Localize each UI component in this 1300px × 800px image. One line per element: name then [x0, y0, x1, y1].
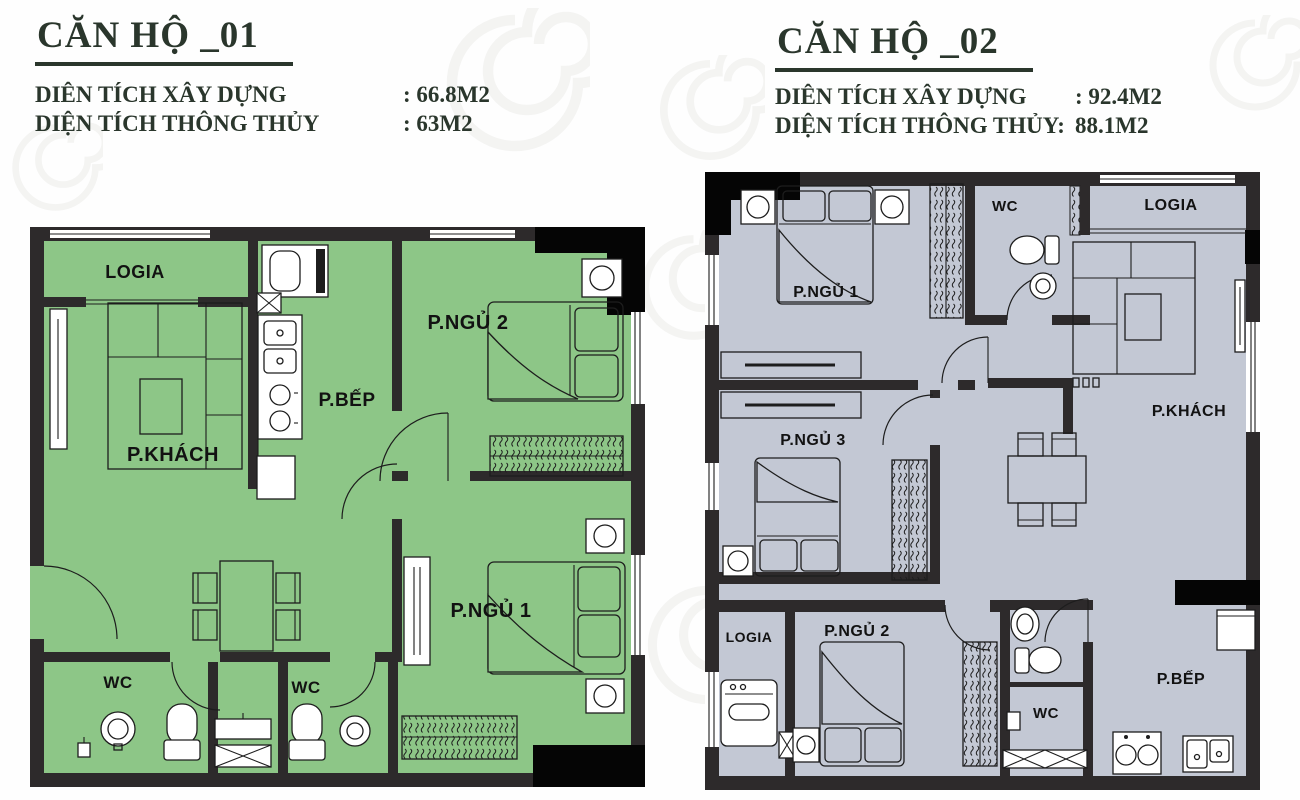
sink-icon — [340, 716, 370, 746]
sink-icon — [1011, 607, 1039, 641]
room-label-bep: P.BẾP — [318, 389, 375, 411]
nightstand-icon — [586, 679, 624, 713]
faucet-icon — [1007, 712, 1020, 730]
wardrobe-icon — [402, 716, 517, 759]
toilet-icon — [1015, 647, 1061, 673]
floorplan-brochure: { "colors": { "wall": "#2d2a2b", "black_… — [0, 0, 1300, 800]
apartment-01-built-area: DIÊN TÍCH XÂY DỰNG : 66.8M2 — [35, 80, 490, 109]
toilet-icon — [289, 704, 325, 760]
apartment-01-header: CĂN HỘ _01 DIÊN TÍCH XÂY DỰNG : 66.8M2 D… — [35, 14, 490, 138]
background-ornament — [655, 55, 765, 165]
nightstand-icon — [586, 519, 624, 553]
washing-machine-icon — [721, 680, 777, 746]
wardrobe-icon — [963, 642, 997, 766]
kitchen-cabinet-icon — [257, 456, 295, 499]
cabinet-icon — [404, 557, 430, 665]
room-label-logia: LOGIA — [105, 262, 165, 282]
fridge-icon — [262, 245, 328, 297]
room-label-ngu3: P.NGỦ 3 — [780, 430, 845, 449]
wardrobe-icon — [930, 184, 963, 318]
apartment-01-title: CĂN HỘ _01 — [35, 14, 293, 66]
clear-area-label: DIỆN TÍCH THÔNG THỦY — [35, 109, 403, 138]
tv-cabinet-icon — [50, 309, 67, 449]
shaft-icon — [215, 745, 271, 767]
apartment-01-clear-area: DIỆN TÍCH THÔNG THỦY : 63M2 — [35, 109, 490, 138]
room-label-wc-bottom: WC — [1033, 705, 1059, 722]
nightstand-icon — [582, 259, 622, 297]
room-label-wc1: WC — [103, 673, 132, 692]
room-label-ngu2: P.NGỦ 2 — [428, 310, 509, 334]
clear-area-value: 88.1M2 — [1075, 111, 1148, 140]
toilet-icon — [164, 704, 200, 760]
built-area-value: : 92.4M2 — [1075, 82, 1162, 111]
nightstand-icon — [741, 190, 775, 224]
plan1-floor — [30, 227, 643, 787]
clear-area-label: DIỆN TÍCH THÔNG THỦY: — [775, 111, 1075, 140]
room-label-ngu1: P.NGỦ 1 — [793, 282, 858, 301]
apartment-02-header: CĂN HỘ _02 DIÊN TÍCH XÂY DỰNG : 92.4M2 D… — [775, 20, 1162, 140]
room-label-logia-bottom: LOGIA — [726, 629, 773, 645]
wardrobe-icon — [892, 460, 927, 580]
nightstand-icon — [793, 728, 819, 762]
built-area-label: DIÊN TÍCH XÂY DỰNG — [35, 80, 403, 109]
apartment-02-floorplan: P.NGỦ 1 WC LOGIA P.KHÁCH P.NGỦ 3 P.NGỦ 2… — [705, 172, 1260, 797]
room-label-khach: P.KHÁCH — [1152, 401, 1226, 420]
stove-icon — [1113, 732, 1161, 774]
shaft-icon — [257, 293, 281, 313]
room-label-khach: P.KHÁCH — [127, 443, 219, 466]
apartment-02-built-area: DIÊN TÍCH XÂY DỰNG : 92.4M2 — [775, 82, 1162, 111]
apartment-01-floorplan: LOGIA P.KHÁCH P.BẾP P.NGỦ 2 P.NGỦ 1 WC W… — [30, 227, 645, 794]
room-label-ngu2: P.NGỦ 2 — [824, 621, 889, 640]
toilet-icon — [1010, 236, 1059, 264]
room-label-wc2: WC — [291, 678, 320, 697]
apartment-02-title: CĂN HỘ _02 — [775, 20, 1033, 72]
built-area-label: DIÊN TÍCH XÂY DỰNG — [775, 82, 1075, 111]
room-label-ngu1: P.NGỦ 1 — [451, 598, 532, 622]
kitchen-sink-icon — [1183, 736, 1233, 772]
clear-area-value: : 63M2 — [403, 109, 473, 138]
room-label-logia-top: LOGIA — [1144, 197, 1197, 214]
built-area-value: : 66.8M2 — [403, 80, 490, 109]
background-ornament — [1205, 15, 1300, 115]
room-label-wc-top: WC — [992, 198, 1018, 215]
kitchen-sink-icon — [258, 315, 302, 439]
wardrobe-icon — [490, 436, 623, 476]
shaft-icon — [1003, 750, 1087, 768]
nightstand-icon — [875, 190, 909, 224]
sink-icon — [1030, 273, 1056, 299]
room-label-bep: P.BẾP — [1157, 669, 1205, 688]
nightstand-icon — [723, 546, 753, 576]
tv-cabinet-icon — [1235, 280, 1245, 352]
apartment-02-clear-area: DIỆN TÍCH THÔNG THỦY: 88.1M2 — [775, 111, 1162, 140]
fridge-icon — [1217, 610, 1255, 650]
